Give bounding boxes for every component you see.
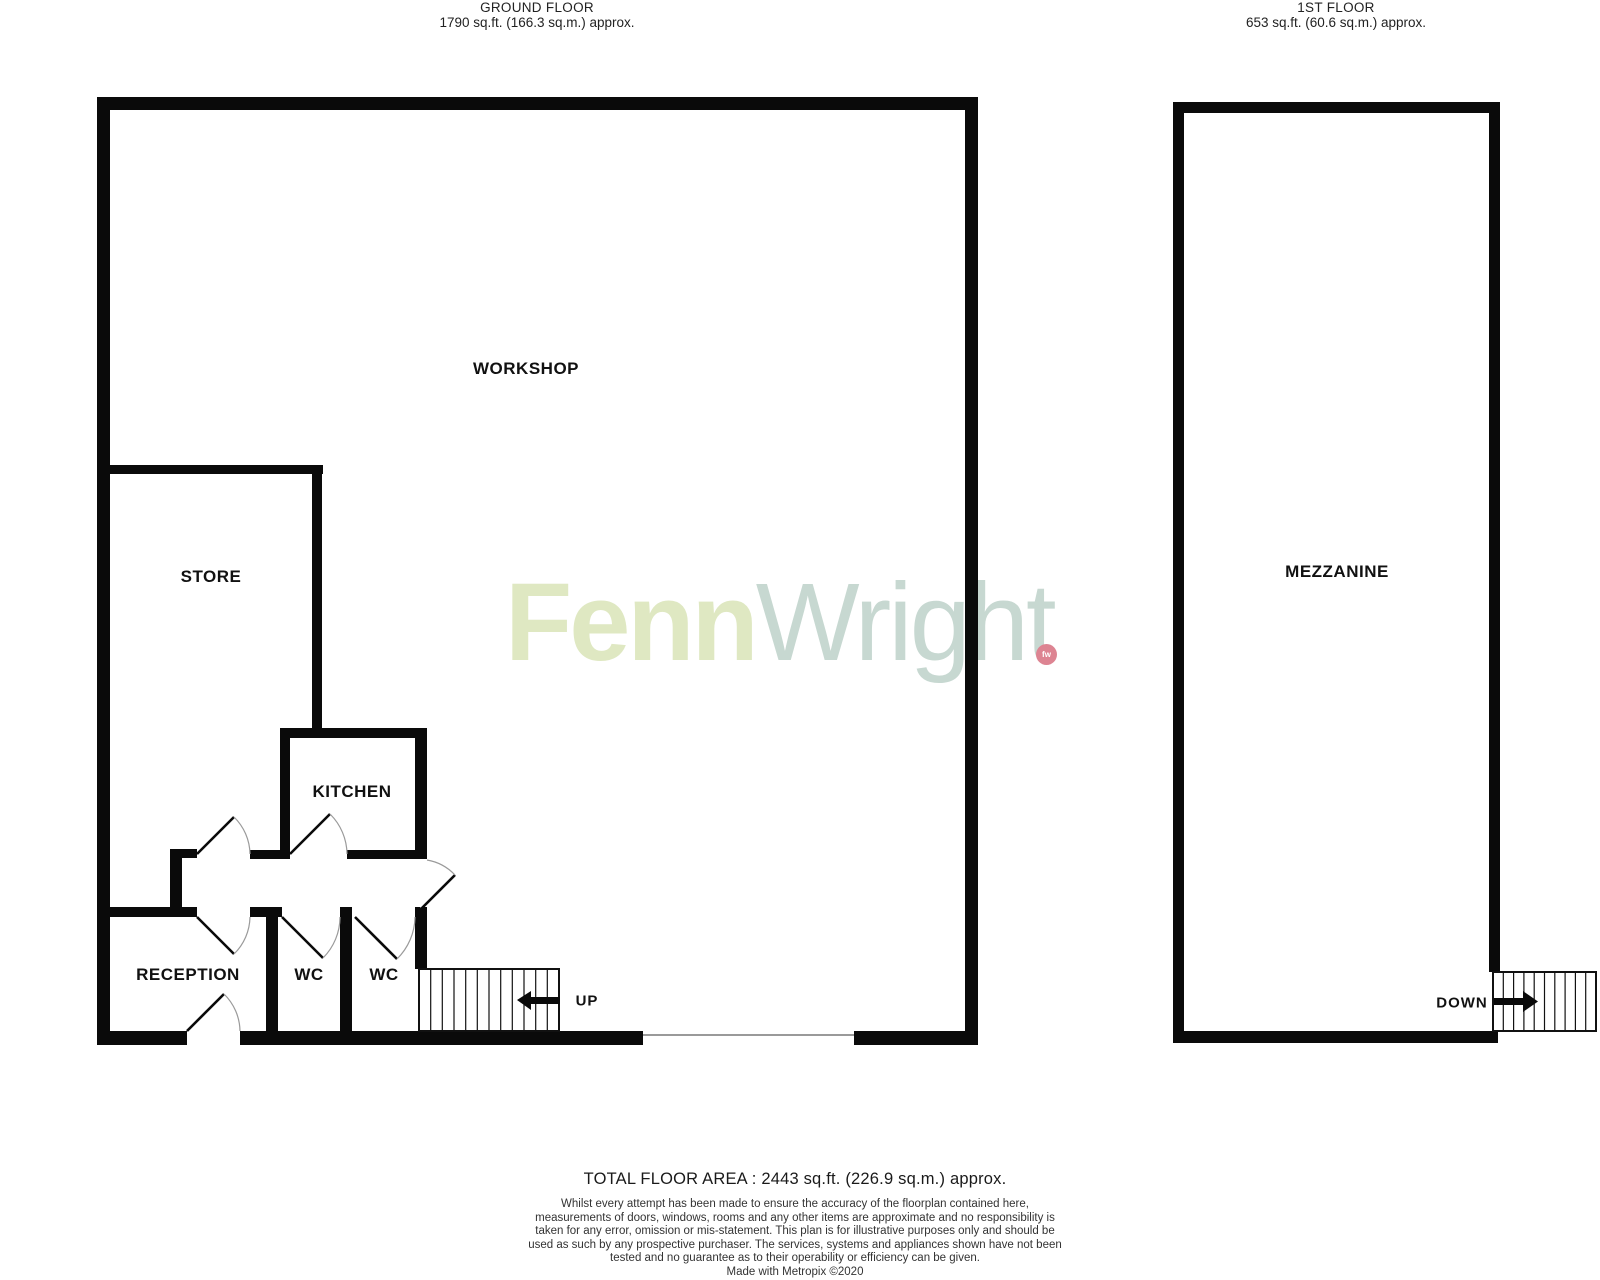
footer: TOTAL FLOOR AREA : 2443 sq.ft. (226.9 sq… (395, 1170, 1195, 1280)
metropix-credit: Made with Metropix ©2020 (395, 1266, 1195, 1280)
room-label-reception: RECEPTION (136, 965, 240, 985)
first-floor-title: 1ST FLOOR (1196, 0, 1476, 15)
ground-floor-stairs (419, 969, 560, 1031)
room-label-wc2: WC (369, 965, 398, 985)
first-floor-area: 653 sq.ft. (60.6 sq.m.) approx. (1196, 15, 1476, 30)
workshop-entrance-opening (643, 1034, 854, 1036)
first-floor-header: 1ST FLOOR 653 sq.ft. (60.6 sq.m.) approx… (1196, 0, 1476, 30)
room-label-store: STORE (181, 567, 242, 587)
room-label-workshop: WORKSHOP (473, 359, 579, 379)
ground-floor-title: GROUND FLOOR (397, 0, 677, 15)
room-label-wc1: WC (294, 965, 323, 985)
first-floor-stairs (1493, 972, 1596, 1031)
disclaimer-text: Whilst every attempt has been made to en… (523, 1198, 1068, 1266)
floorplan-linework (0, 0, 1600, 1269)
room-label-mezzanine: MEZZANINE (1285, 562, 1389, 582)
stairs-up-label: UP (576, 993, 599, 1010)
ground-floor-doors (187, 814, 455, 1031)
room-label-kitchen: KITCHEN (312, 782, 391, 802)
floorplan-canvas: FennWright fw (0, 0, 1600, 1269)
total-floor-area: TOTAL FLOOR AREA : 2443 sq.ft. (226.9 sq… (395, 1170, 1195, 1189)
ground-floor-header: GROUND FLOOR 1790 sq.ft. (166.3 sq.m.) a… (397, 0, 677, 30)
ground-floor-area: 1790 sq.ft. (166.3 sq.m.) approx. (397, 15, 677, 30)
stairs-down-label: DOWN (1436, 995, 1488, 1012)
